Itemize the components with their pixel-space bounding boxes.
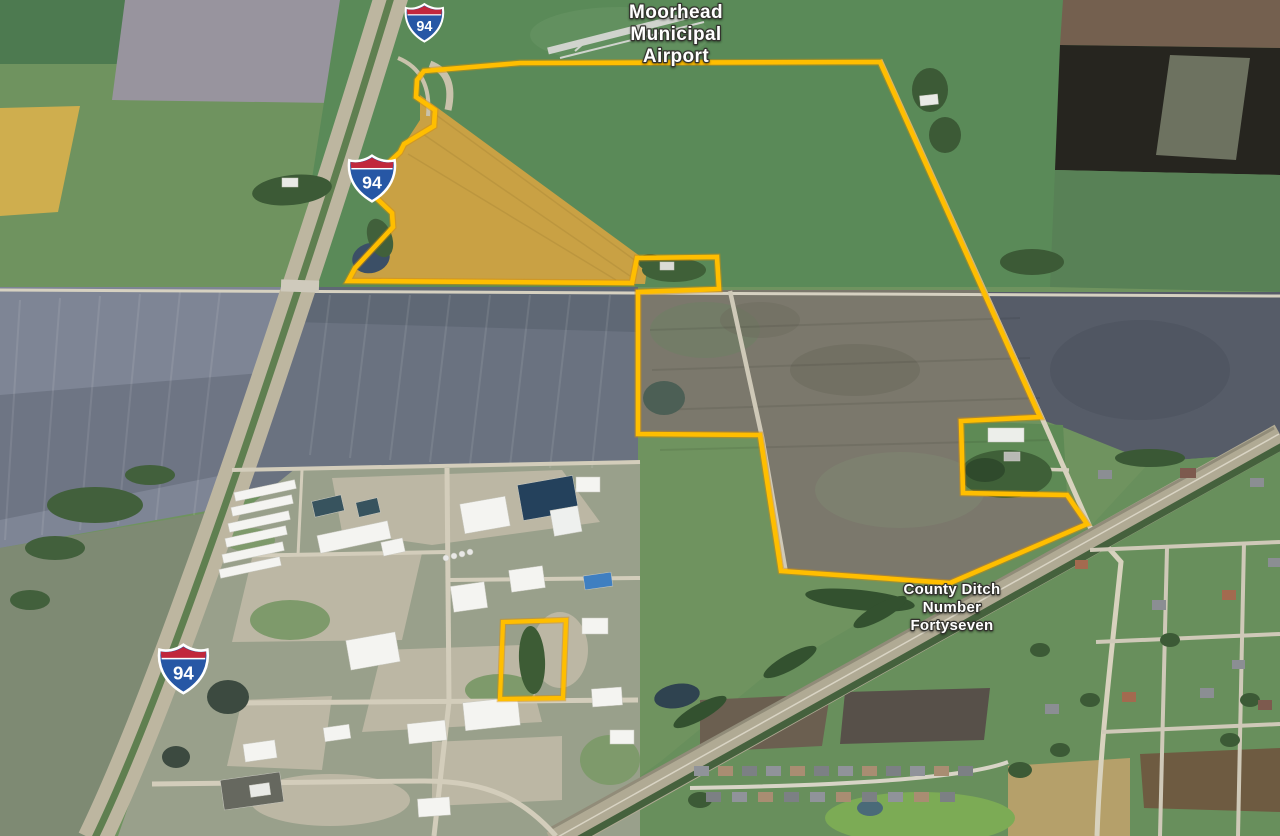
farm-building xyxy=(282,178,298,187)
airport-label-line1: Moorhead xyxy=(629,2,723,23)
retention-pond xyxy=(643,381,685,415)
airport-label-line3: Airport xyxy=(643,46,709,67)
aerial-map-view[interactable]: 94 xyxy=(0,0,1280,836)
ditch-label-line2: Number xyxy=(923,599,981,616)
pond xyxy=(207,680,249,714)
golf-pond xyxy=(857,800,883,816)
ditch-label-line3: Fortyseven xyxy=(910,617,993,634)
barn xyxy=(988,428,1024,442)
airport-label-line2: Municipal xyxy=(630,24,721,45)
pond xyxy=(162,746,190,768)
overpass xyxy=(281,279,319,292)
ditch-label-line1: County Ditch xyxy=(904,581,1001,598)
satellite-imagery: 94 xyxy=(0,0,1280,836)
